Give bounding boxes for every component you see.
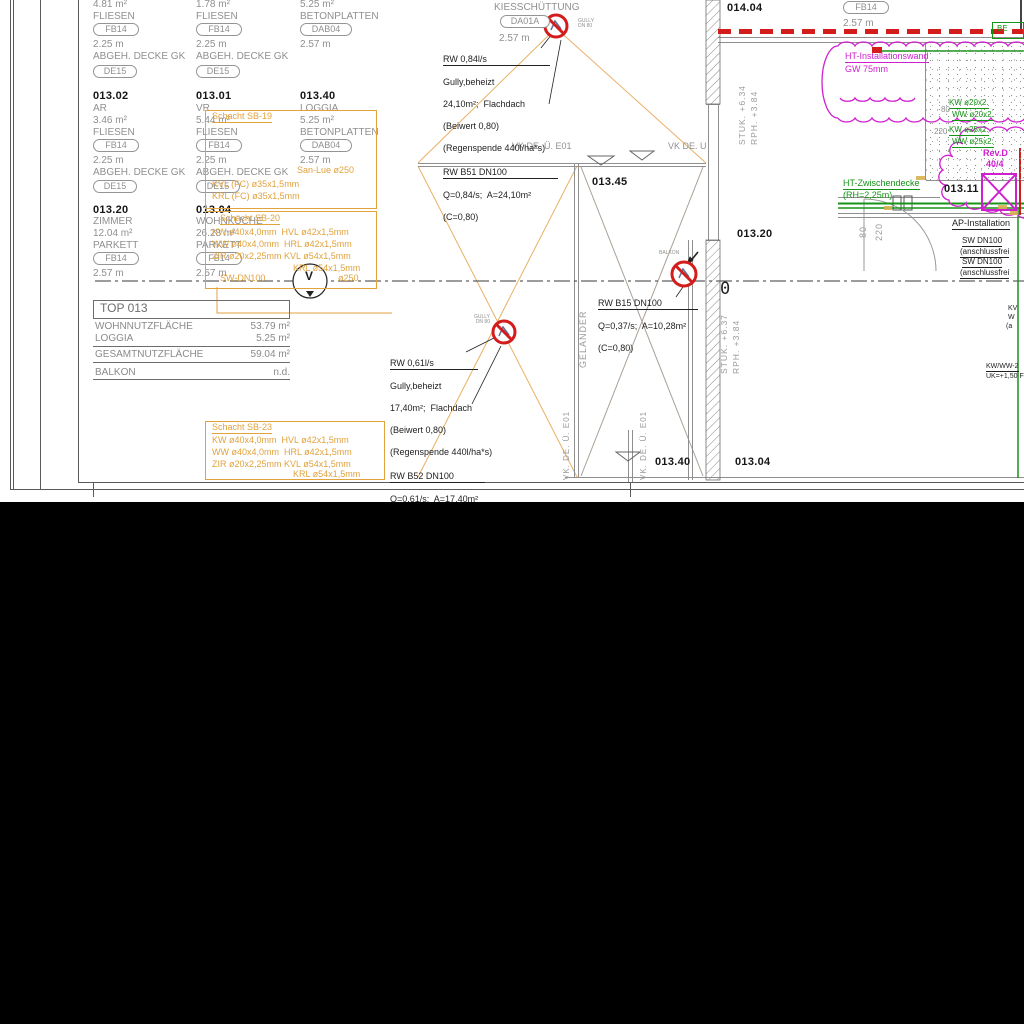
kies-label: KIESSCHÜTTUNG (494, 2, 580, 13)
shaft-line: KRL ø54x1,5mm (293, 470, 360, 480)
sw-label: SW DN100 (962, 258, 1024, 268)
rw-head2: RW B51 DN100 (443, 167, 558, 179)
room-number: 013.40 (300, 90, 335, 102)
room-area: 5.25 m² (300, 0, 334, 10)
shaft-line: WW ø40x4,0mm HRL ø42x1,5mm (212, 240, 352, 250)
shaft-line: KVL (FC) ø35x1,5mm (212, 180, 299, 190)
level-rph: RPH. +3.84 (749, 83, 761, 145)
shaft-line: ø250 (338, 274, 359, 284)
table-rule (93, 346, 290, 347)
plan-room-number: 013.45 (592, 176, 627, 188)
shaft-line: KRL (FC) ø35x1,5mm (212, 192, 300, 202)
shaft-line: WW ø40x4,0mm HRL ø42x1,5mm (212, 448, 352, 458)
edge-fragment: (a (1006, 323, 1012, 331)
room-height: 2.25 m (196, 39, 227, 50)
room-height: 2.57 m (843, 18, 874, 29)
plan-room-number: 014.04 (727, 2, 762, 14)
top013-row-value: n.d. (180, 367, 290, 378)
room-height: 2.57 m (300, 39, 331, 50)
insulation-speck (998, 205, 1007, 209)
room-area: 3.46 m² (93, 115, 127, 126)
black-mask (0, 502, 1024, 1024)
room-height: 2.25 m (93, 39, 124, 50)
shaft-title: Schacht SB-23 (212, 423, 272, 434)
rw-note-1: RW 0,84l/s Gully,beheizt 24,10m²; Flachd… (433, 43, 558, 234)
room-number: 013.02 (93, 90, 128, 102)
table-rule (93, 362, 290, 363)
ht-decke-label: HT-Zwischendecke (843, 179, 920, 190)
floor-code-badge: FB14 (93, 23, 139, 36)
room-floor: FLIESEN (196, 11, 238, 22)
ceiling-code-badge: DE15 (196, 65, 240, 78)
dim-220: 220 (934, 128, 947, 137)
room-number: 013.20 (93, 204, 128, 216)
shaft-title: Schacht SB-19 (212, 112, 272, 123)
room-height: 2.57 m (93, 268, 124, 279)
floor-code-badge: FB14 (843, 1, 889, 14)
pipe-label: KW ø20x2. (949, 99, 1024, 109)
room-area: 1.78 m² (196, 0, 230, 10)
room-area: 12.04 m² (93, 228, 132, 239)
gully-label: GULLYDN 80 (462, 315, 490, 325)
shaft-line: KW ø40x4,0mm HVL ø42x1,5mm (212, 436, 349, 446)
rh-label: (RH=2,25m) (843, 191, 892, 201)
roof-code-badge: DA01A (500, 15, 550, 28)
top013-row-label: WOHNNUTZFLÄCHE (95, 321, 193, 332)
sw-note: (anschlussfrei (960, 248, 1024, 258)
top013-row-label: LOGGIA (95, 333, 133, 344)
sw-label: SW DN100 (962, 237, 1024, 247)
floor-plan-sheet: 4.81 m² FLIESEN FB14 2.25 m ABGEH. DECKE… (0, 0, 1024, 1024)
sw-note: (anschlussfrei (960, 269, 1024, 279)
floor-code-badge: DAB04 (300, 23, 352, 36)
vkde-label: VK. DE. Ü. E01 (562, 412, 573, 480)
door-dim-80: 80 (858, 206, 869, 238)
insulation-speck (884, 206, 892, 210)
floor-code-badge: FB14 (93, 252, 139, 265)
room-floor: FLIESEN (93, 11, 135, 22)
rw-note-b15: RW B15 DN100 Q=0,37/s; A=10,28m² (C=0,80… (588, 287, 698, 365)
pipe-label: WW ø20x2. (952, 111, 1024, 121)
room-height: 2.25 m (93, 155, 124, 166)
ceiling-code-badge: DE15 (93, 65, 137, 78)
level-stuk: STUK. +6.34 (737, 83, 749, 145)
pipe-label: KW ø25x2. (949, 126, 1024, 136)
ceiling-code-badge: DE15 (93, 180, 137, 193)
level-stuk: STUK. +6.37 (719, 308, 731, 374)
uk-label: UK=+1,50 F (986, 373, 1024, 381)
table-rule (93, 379, 290, 380)
ht-wand-label: HT-Installationswand (845, 52, 929, 63)
rw-head: RW 0,61l/s (390, 358, 478, 370)
room-floor: FLIESEN (93, 127, 135, 138)
dim-80: 80 (941, 106, 950, 115)
door-dim-220: 220 (874, 203, 885, 241)
level-rph: RPH. +3.84 (731, 308, 743, 374)
room-name: AR (93, 103, 107, 114)
floor-code-badge: FB14 (196, 23, 242, 36)
shaft-line: ZIR ø20x2,25mm KVL ø54x1,5mm (212, 252, 351, 262)
rw-head: RW 0,84l/s (443, 54, 550, 66)
shaft-line: San-Lue ø250 (297, 166, 354, 176)
room-ceiling: ABGEH. DECKE GK (93, 167, 185, 178)
gully-label: GULLYDN 80 (578, 19, 594, 29)
shaft-line: SW-DN100 (220, 274, 265, 284)
gully-roof-bottom (493, 321, 515, 343)
room-name: ZIMMER (93, 216, 132, 227)
plan-room-number: 013.11 (944, 183, 979, 195)
vk-label: VK DE. Ü (668, 142, 706, 152)
vkde-label: VK. DE. Ü. E01 (639, 408, 650, 480)
rev-number: 40/4 (986, 160, 1004, 170)
vent-symbol-letter: V (305, 270, 313, 283)
room-floor: BETONPLATTEN (300, 11, 379, 22)
rev-label: Rev.D (983, 149, 1008, 159)
shaft-title: Schacht SB-20 (220, 214, 280, 225)
shaft-line: KW ø40x4,0mm HVL ø42x1,5mm (212, 228, 349, 238)
red-dashed-line (718, 29, 1024, 34)
edge-fragment: W (1008, 314, 1015, 322)
pipe-label: WW ø25x2. (952, 138, 1024, 148)
top013-row-label: BALKON (95, 367, 136, 378)
gw-label: GW 75mm (845, 65, 888, 75)
insulation-speck (1010, 211, 1018, 215)
plan-room-number: 013.04 (735, 456, 770, 468)
room-floor: PARKETT (93, 240, 138, 251)
plan-room-number: 013.20 (737, 228, 772, 240)
edge-fragment: KV (1008, 305, 1017, 313)
ap-installation-label: AP-Installation (952, 219, 1010, 230)
kwww-label: KW/WW-2 (986, 363, 1024, 372)
be-label: BE (997, 25, 1008, 34)
top013-title: TOP 013 (100, 302, 148, 315)
top013-row-value: 59.04 m² (180, 349, 290, 360)
gully-balcony (672, 262, 696, 286)
room-ceiling: ABGEH. DECKE GK (93, 51, 185, 62)
room-number: 013.01 (196, 90, 231, 102)
balkon-label: BALKON (659, 251, 679, 256)
plan-room-number: 013.40 (655, 456, 690, 468)
gelaender-label: GELÄNDER (578, 296, 590, 368)
top013-row-value: 53.79 m² (180, 321, 290, 332)
rw-head2: RW B52 DN100 (390, 471, 485, 483)
rw-head: RW B15 DN100 (598, 298, 698, 310)
room-ceiling: ABGEH. DECKE GK (196, 51, 288, 62)
room-area: 4.81 m² (93, 0, 127, 10)
zero-marker: 0 (720, 280, 730, 299)
top013-row-value: 5.25 m² (180, 333, 290, 344)
floor-code-badge: FB14 (93, 139, 139, 152)
